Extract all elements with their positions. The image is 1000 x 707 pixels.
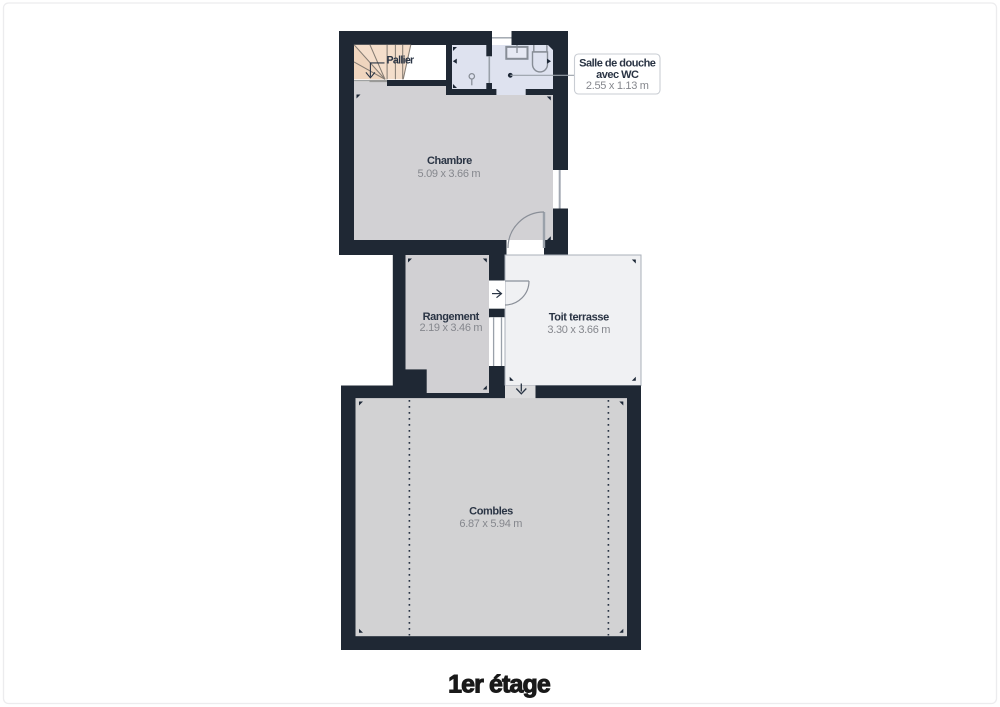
svg-text:Salle de douche: Salle de douche <box>579 58 656 70</box>
svg-text:avec WC: avec WC <box>596 69 639 81</box>
svg-text:3.30 x 3.66 m: 3.30 x 3.66 m <box>547 324 610 336</box>
svg-text:1er étage: 1er étage <box>448 671 551 699</box>
svg-text:Chambre: Chambre <box>427 155 472 167</box>
svg-text:2.19 x 3.46 m: 2.19 x 3.46 m <box>420 322 483 334</box>
svg-text:Combles: Combles <box>469 506 513 518</box>
svg-text:5.09 x 3.66 m: 5.09 x 3.66 m <box>418 168 481 180</box>
svg-text:Toit terrasse: Toit terrasse <box>549 311 609 323</box>
svg-text:2.55 x 1.13 m: 2.55 x 1.13 m <box>586 80 649 92</box>
svg-text:6.87 x 5.94 m: 6.87 x 5.94 m <box>459 518 522 530</box>
svg-text:Pallier: Pallier <box>387 55 414 67</box>
